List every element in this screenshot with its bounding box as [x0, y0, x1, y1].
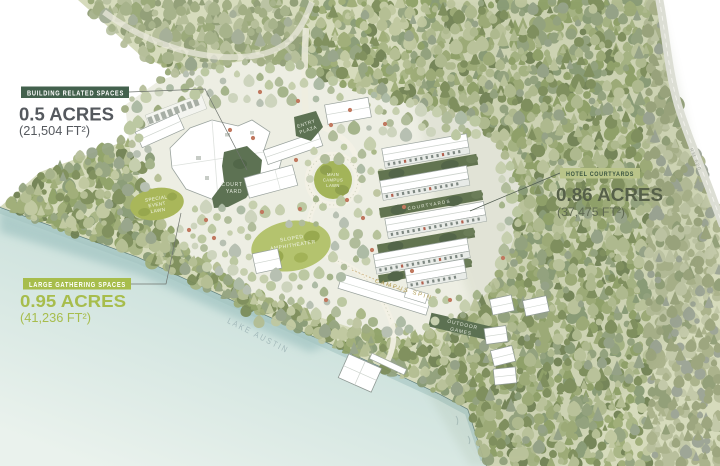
svg-text:(21,504 FT²): (21,504 FT²) [19, 123, 90, 138]
svg-text:(41,236 FT²): (41,236 FT²) [20, 311, 91, 325]
svg-text:COURT: COURT [221, 182, 242, 188]
svg-text:0.95 ACRES: 0.95 ACRES [20, 291, 126, 311]
svg-text:MAIN: MAIN [327, 172, 339, 177]
svg-text:LARGE GATHERING SPACES: LARGE GATHERING SPACES [29, 280, 126, 289]
svg-text:(37,475 FT²): (37,475 FT²) [557, 205, 625, 219]
svg-text:CAMPUS: CAMPUS [323, 177, 343, 182]
svg-text:YARD: YARD [226, 189, 242, 195]
svg-text:0.86 ACRES: 0.86 ACRES [556, 185, 663, 205]
svg-text:BUILDING RELATED SPACES: BUILDING RELATED SPACES [27, 88, 124, 97]
svg-text:HOTEL COURTYARDS: HOTEL COURTYARDS [566, 171, 634, 178]
svg-text:LAWN: LAWN [326, 183, 340, 188]
svg-text:0.5 ACRES: 0.5 ACRES [19, 104, 114, 125]
